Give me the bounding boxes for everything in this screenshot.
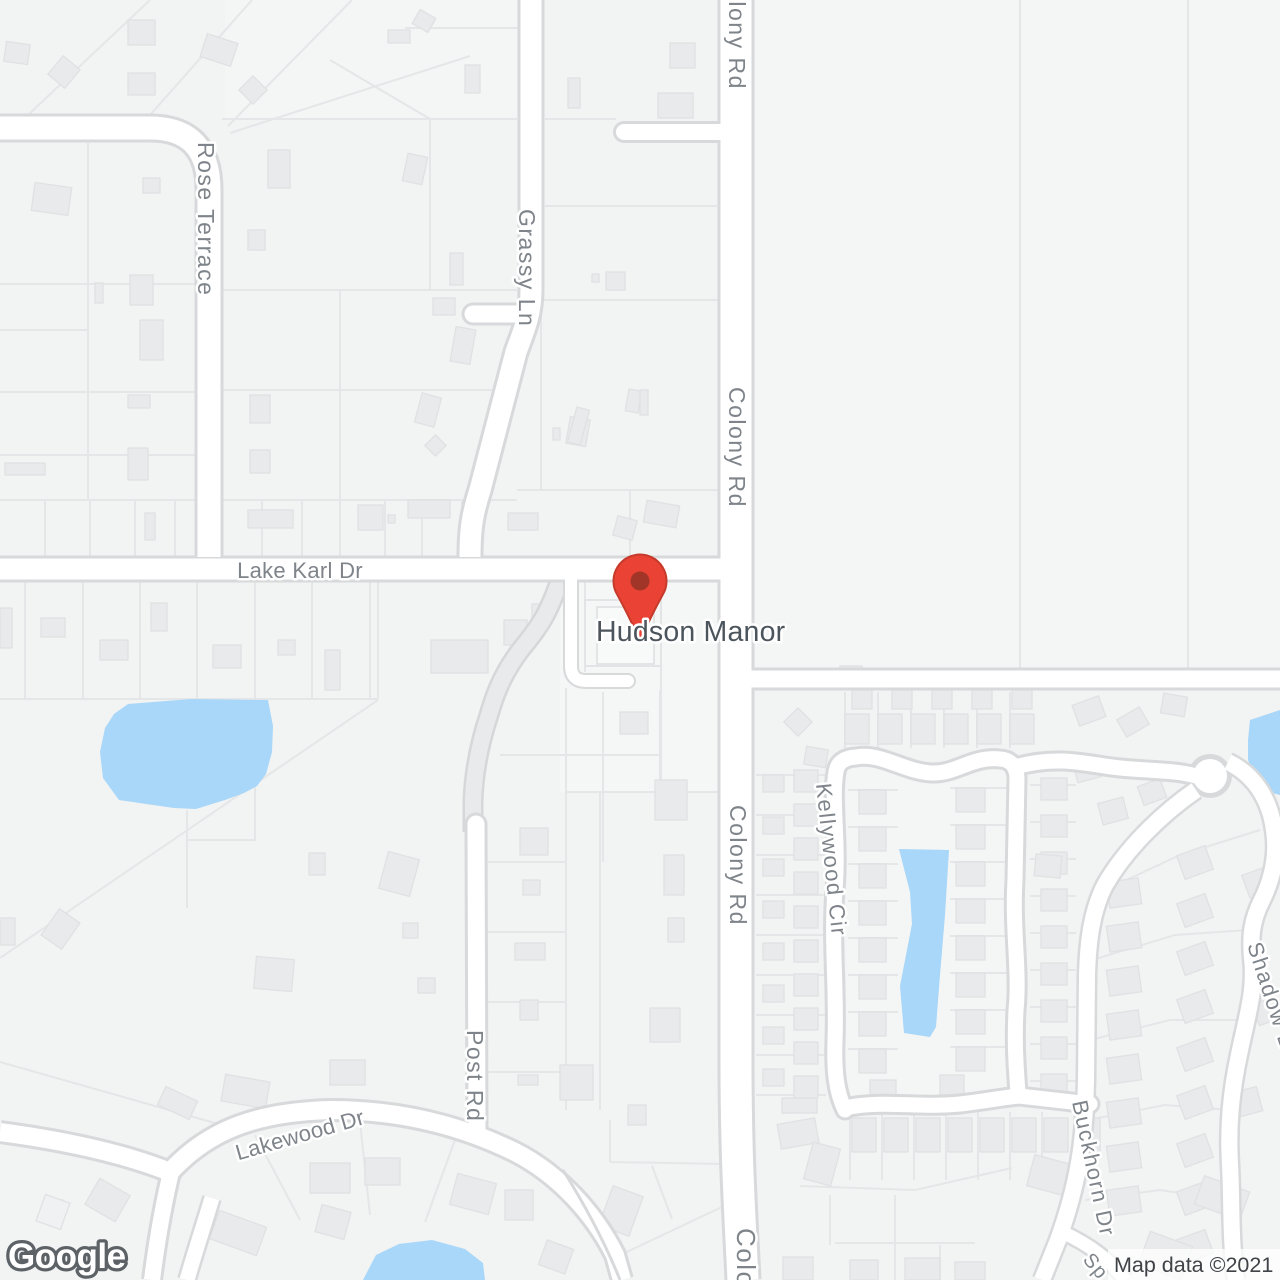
svg-text:Hudson Manor: Hudson Manor: [596, 616, 786, 648]
svg-text:Post Rd: Post Rd: [462, 1030, 488, 1122]
svg-text:Map data ©2021: Map data ©2021: [1114, 1253, 1273, 1277]
svg-text:Colony Rd: Colony Rd: [725, 805, 751, 926]
svg-text:Colony Rd: Colony Rd: [724, 387, 750, 508]
svg-text:Colony Rd: Colony Rd: [724, 0, 750, 90]
svg-text:Lake Karl Dr: Lake Karl Dr: [237, 558, 363, 583]
svg-text:Rose Terrace: Rose Terrace: [193, 142, 219, 296]
svg-text:Colony Rd: Colony Rd: [731, 1228, 761, 1280]
svg-text:Grassy Ln: Grassy Ln: [514, 209, 540, 327]
svg-text:Google: Google: [8, 1237, 126, 1276]
